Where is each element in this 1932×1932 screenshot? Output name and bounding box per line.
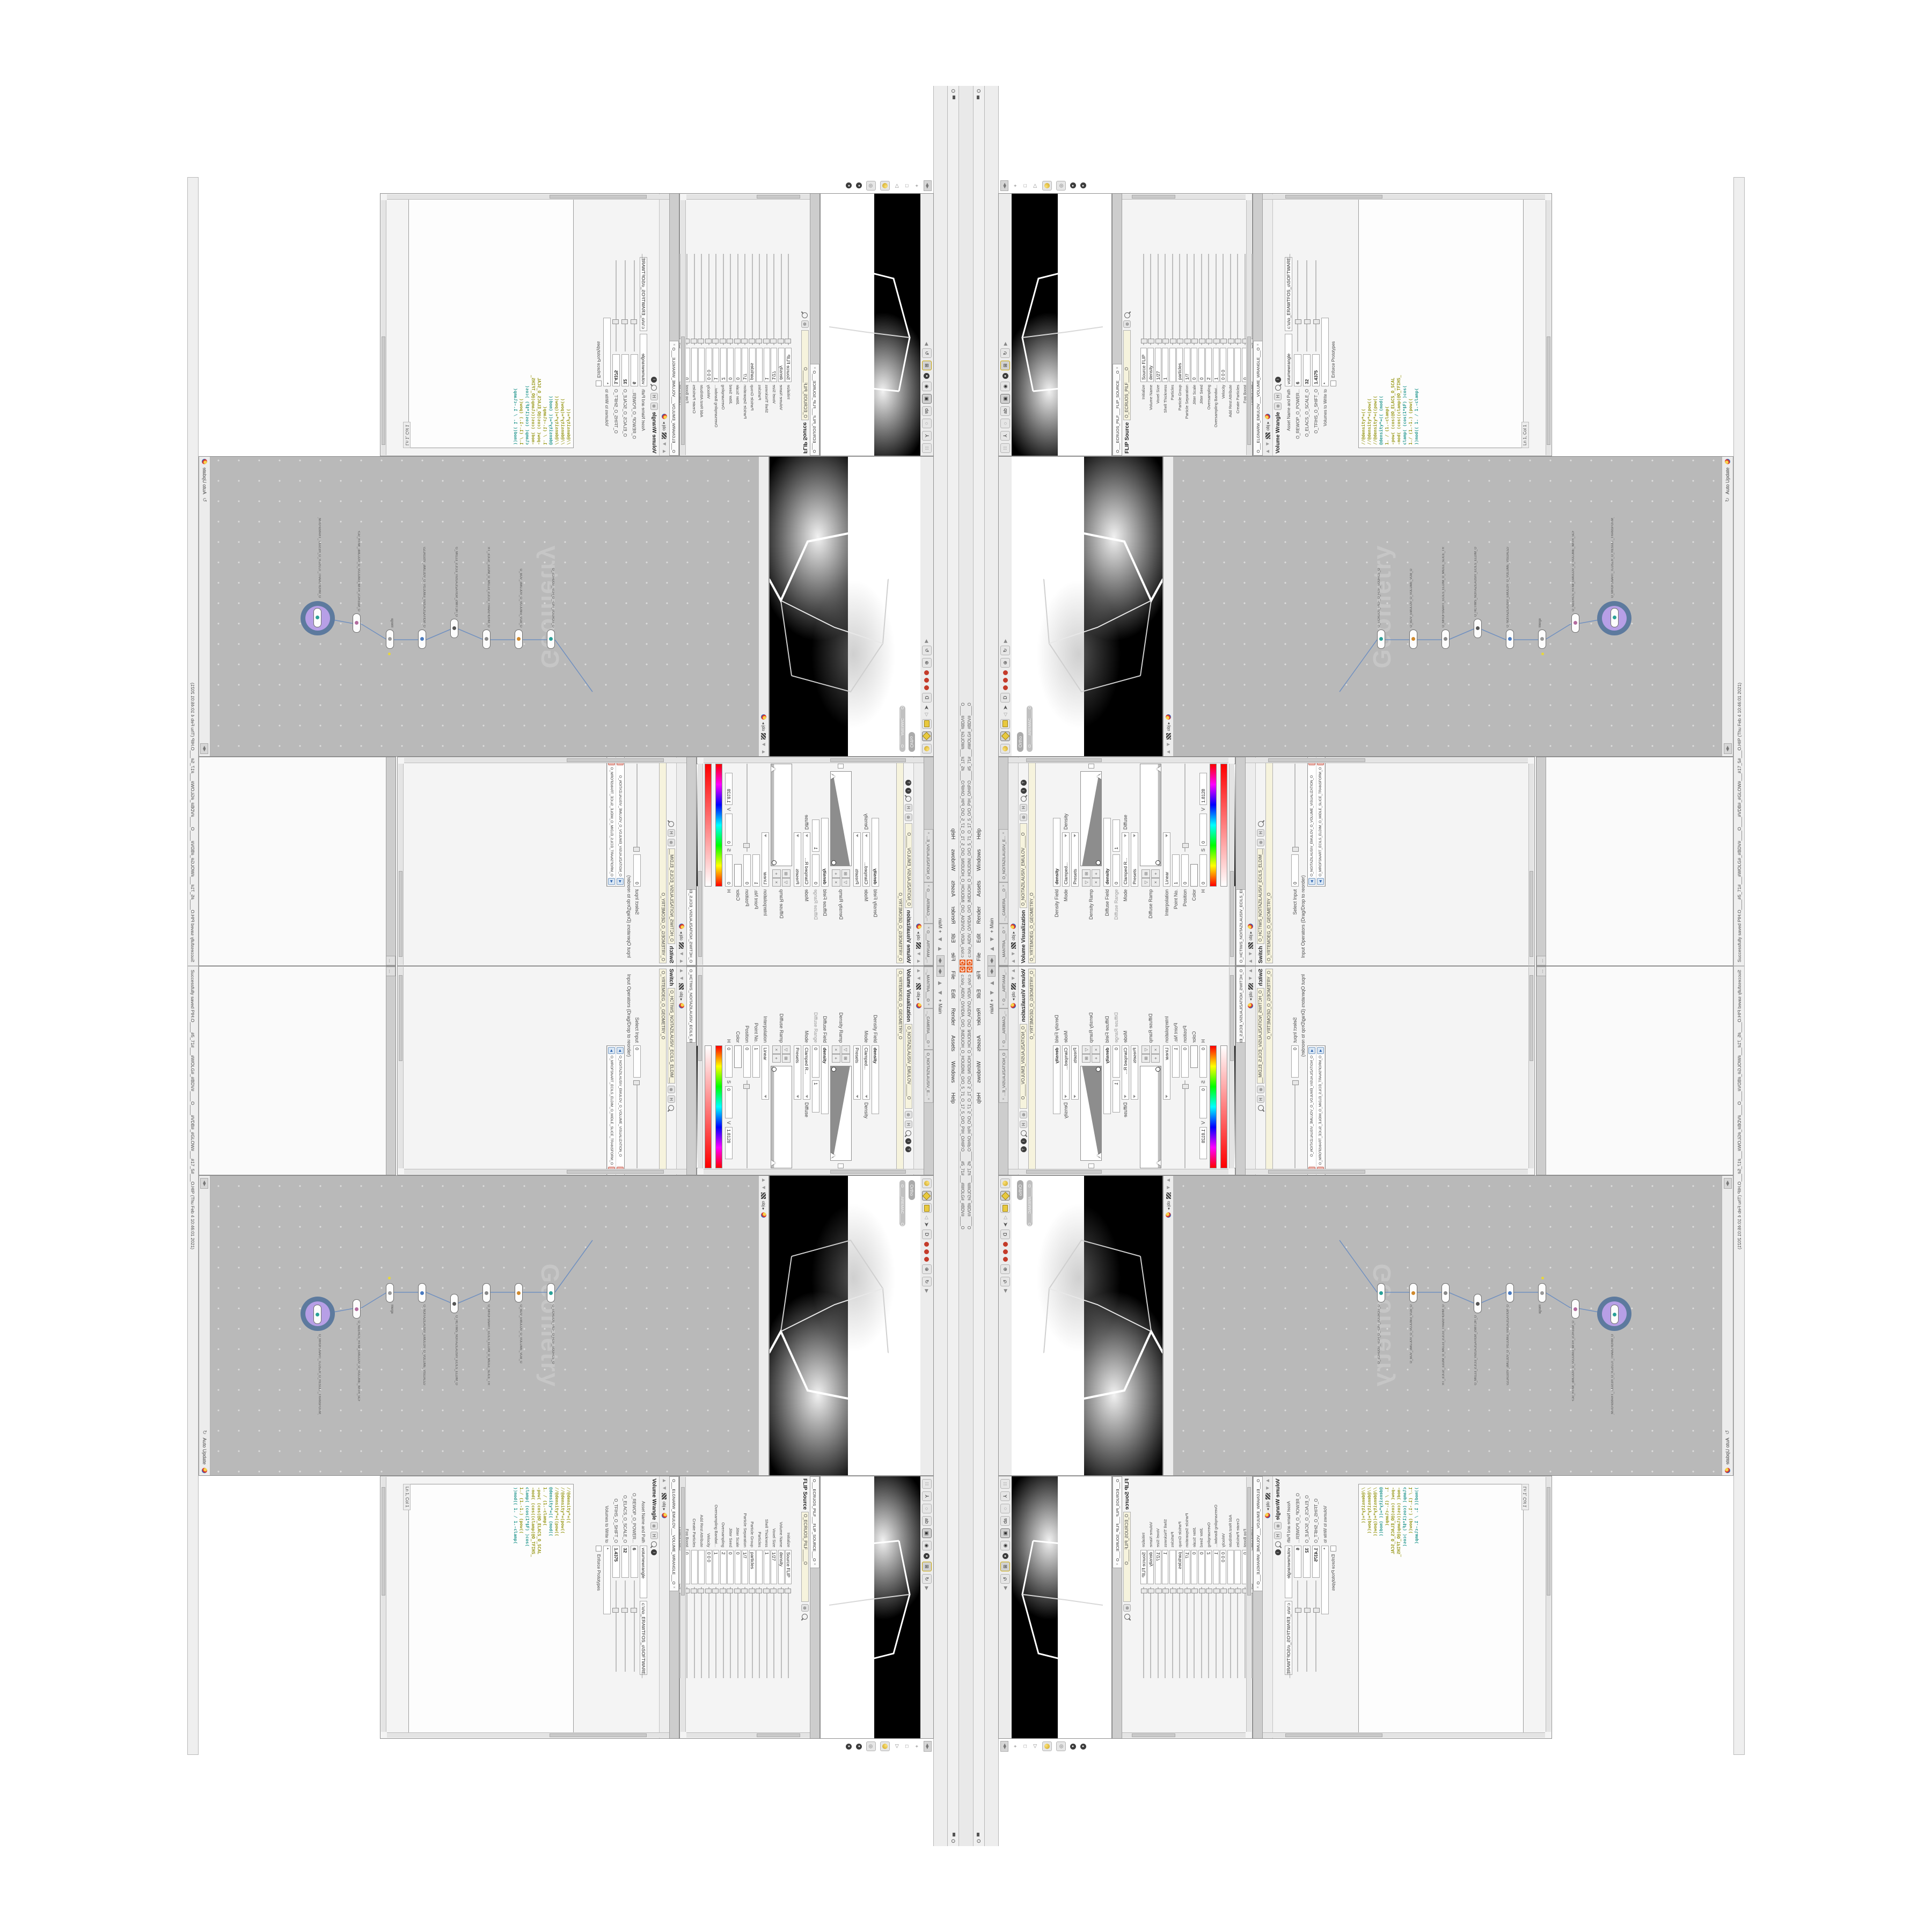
p4-vertical-scrollbar[interactable] (686, 194, 810, 200)
tab-close-icon[interactable]: × (926, 926, 930, 928)
camera-lock-icon[interactable]: ⊕ (922, 1264, 932, 1274)
pane-tab[interactable]: O___ECRUOS_PILF___FLIP_SOURCE___O× (1113, 1476, 1122, 1568)
param-input[interactable]: 32 (621, 354, 629, 386)
param-input[interactable] (699, 1550, 705, 1584)
target-chip-icon[interactable]: ◎ (1056, 1741, 1066, 1751)
menu-item[interactable]: Assets (950, 1030, 956, 1056)
ortho-pill[interactable]: Ortho (1017, 732, 1023, 752)
view-cycle-icon[interactable]: ↻ (922, 646, 932, 655)
window-o-button[interactable]: O (950, 1839, 956, 1843)
menu-item[interactable]: Edit (976, 984, 982, 1003)
saturation-ramp[interactable] (1220, 1045, 1227, 1168)
search-icon[interactable] (1021, 796, 1027, 802)
p2-horizontal-scrollbar[interactable] (1528, 764, 1534, 965)
camera-pill[interactable]: O____AREMAC____O (899, 1180, 905, 1226)
menu-item[interactable]: Help (976, 824, 982, 845)
camera-pill[interactable]: O____AREMAC____O (1027, 1180, 1033, 1226)
reorder-icon[interactable]: ◄ (617, 878, 624, 885)
viewport2-render[interactable] (821, 1476, 920, 1738)
render-icon-1[interactable] (1003, 1242, 1008, 1247)
p4-vertical-scrollbar[interactable] (1122, 194, 1246, 200)
vex-code-editor[interactable]: //@density*=((//@density*=(pow((//@densi… (408, 199, 574, 448)
param-slider[interactable] (745, 1587, 746, 1678)
down-arrow-icon[interactable]: ▼ (1166, 1185, 1172, 1190)
node-visualization[interactable] (418, 630, 426, 649)
window-o-button[interactable]: O (976, 1839, 982, 1843)
target-chip-icon[interactable]: ◎ (866, 1741, 876, 1751)
up-arrow-icon[interactable]: ▲ (761, 749, 767, 755)
p5-horizontal-scrollbar[interactable] (1546, 200, 1551, 455)
gear-icon[interactable]: ⊛ (668, 1086, 675, 1093)
gear-icon[interactable]: ⊛ (1257, 839, 1264, 846)
param-slider[interactable] (1297, 1580, 1298, 1672)
param-input[interactable]: 0 (735, 348, 741, 382)
hsv-h-input[interactable]: 0 (1199, 1045, 1207, 1078)
camera-lock-icon[interactable]: ⊕ (1000, 1264, 1010, 1274)
param-slider[interactable] (694, 1587, 695, 1678)
param-input[interactable]: 1/7 (742, 1550, 749, 1584)
param-slider[interactable] (766, 1587, 767, 1678)
search-icon[interactable] (1258, 1105, 1264, 1111)
collapse-handle[interactable]: ◀▶ (987, 966, 996, 977)
node-midslice-transform[interactable] (482, 630, 491, 649)
search-icon[interactable] (652, 385, 657, 391)
hsv-s-input[interactable]: 0 (1199, 1086, 1207, 1118)
render-icon-2[interactable] (1003, 1249, 1008, 1254)
tab-close-icon[interactable]: × (1116, 1563, 1119, 1565)
param-slider[interactable] (723, 254, 724, 345)
render-icon-3[interactable] (1003, 1257, 1008, 1262)
tab-close-icon[interactable]: × (813, 367, 816, 369)
param-input[interactable]: 0 (1198, 1550, 1205, 1584)
view-tool-icon[interactable] (922, 1179, 932, 1188)
tab-close-icon[interactable]: × (1002, 885, 1006, 887)
param-slider[interactable] (1194, 1587, 1195, 1678)
grid-icon[interactable]: ◌ (922, 1504, 932, 1513)
node-result-transform-selected[interactable] (1611, 608, 1619, 627)
node-flip-source[interactable] (1377, 1283, 1385, 1302)
asset-name-field[interactable]: volumewrangle (1285, 1546, 1292, 1598)
node-merge[interactable] (386, 630, 394, 649)
position-input[interactable]: 0 (743, 854, 751, 887)
tab-close-icon[interactable]: × (1002, 926, 1006, 928)
down-arrow-icon[interactable]: ▼ (1011, 951, 1016, 956)
ramp-buttons[interactable]: ▽⊞×+ (1082, 870, 1100, 887)
point-no-input[interactable]: 1 (752, 1045, 760, 1078)
color-swatch[interactable] (734, 864, 742, 887)
param-input[interactable]: 1/7 (1184, 1550, 1190, 1584)
param-slider[interactable] (1201, 254, 1202, 345)
node-path-field[interactable]: O_YRTEMOEG_O_GEOMETRY_O (1028, 969, 1036, 1173)
info-icon[interactable]: i (906, 788, 912, 794)
param-slider[interactable] (1245, 254, 1246, 345)
search-icon[interactable] (669, 821, 675, 827)
quadview-icon[interactable]: ⊞ (922, 361, 932, 370)
ramp-preview-checkbox[interactable] (1088, 1163, 1094, 1168)
pane-tab[interactable]: ..._CAMERA___O× (924, 1008, 933, 1050)
param-slider[interactable] (1216, 254, 1217, 345)
diffuse-range-0[interactable]: 0 (812, 854, 819, 887)
prev-icon[interactable]: ◁ (1002, 713, 1008, 716)
saturation-ramp[interactable] (705, 764, 712, 887)
up-arrow-icon[interactable]: ▲ (916, 958, 922, 964)
image-plane-icon[interactable]: ▣ (1000, 1528, 1010, 1538)
menu-item[interactable]: File (976, 966, 982, 984)
viewport2-render[interactable] (821, 194, 920, 456)
node-name-field[interactable]: O_ECRUOS_PILF_____O (801, 330, 809, 420)
param-slider[interactable] (1187, 254, 1188, 345)
param-input[interactable] (757, 1550, 763, 1584)
menu-item[interactable]: Assets (976, 1030, 982, 1056)
param-input[interactable] (1227, 348, 1234, 382)
down-arrow-icon[interactable]: ▼ (1248, 976, 1254, 981)
p5-vertical-scrollbar[interactable] (1263, 194, 1545, 200)
param-input[interactable] (691, 348, 698, 382)
up-arrow-icon[interactable]: ▲ (1265, 449, 1271, 454)
param-slider[interactable] (788, 1587, 789, 1678)
window-o-button[interactable]: O (950, 89, 956, 93)
param-slider[interactable] (745, 254, 746, 345)
param-slider[interactable] (1208, 254, 1209, 345)
p4-horizontal-scrollbar[interactable] (1246, 200, 1252, 455)
eye-icon[interactable]: ◉ (1000, 382, 1010, 391)
render-icon-1[interactable] (1003, 685, 1008, 690)
presets-dropdown[interactable]: Presets (853, 1045, 861, 1100)
desktop-selector[interactable]: + Main (989, 918, 994, 933)
asset-name-field[interactable]: volumewrangle (1285, 334, 1292, 386)
param-slider[interactable] (737, 1587, 738, 1678)
saturation-ramp[interactable] (705, 1045, 712, 1168)
snap-icon[interactable]: D (1000, 1230, 1010, 1239)
volumes-input[interactable]: * (603, 1546, 611, 1614)
param-slider[interactable] (1150, 1587, 1151, 1678)
vex-code-editor[interactable]: //@density*=((//@density*=(pow((//@densi… (408, 1484, 574, 1733)
menu-item[interactable]: Render (950, 902, 956, 929)
hsv-v-input[interactable]: 1.8128 (1199, 773, 1207, 805)
view-tool-icon[interactable] (1000, 1179, 1010, 1188)
render-icon-3[interactable] (1003, 670, 1008, 675)
tab-close-icon[interactable]: × (1002, 1098, 1006, 1100)
node-name-field[interactable]: O_NOITAZILAUSIV_EMULOV_____O (1020, 1024, 1027, 1109)
collapse-handle[interactable]: ◀▶ (1000, 180, 1008, 191)
search-icon[interactable] (1275, 385, 1281, 391)
reorder-icon[interactable]: ◄ (1308, 1047, 1315, 1054)
gear-icon[interactable]: ⊛ (801, 1604, 809, 1612)
param-input[interactable]: 0 (1191, 1550, 1197, 1584)
param-slider[interactable] (1187, 1587, 1188, 1678)
ramp-handle[interactable] (1096, 860, 1101, 865)
diffuse-range-1[interactable]: 1 (812, 819, 819, 852)
gear-icon[interactable]: ⊛ (668, 839, 675, 846)
ramp-pointer[interactable] (1097, 1153, 1101, 1158)
hue-ramp[interactable] (715, 1045, 722, 1168)
down-arrow-icon[interactable]: ▼ (1265, 441, 1271, 447)
node-result-transform-selected[interactable] (313, 1305, 321, 1324)
pane-tab[interactable]: O___ELGNARW_EMULOV___VOLUME_WRANGLE___O× (670, 341, 679, 456)
param-input[interactable]: 6 (1294, 354, 1301, 386)
refresh-icon[interactable]: ↻ (202, 1430, 208, 1435)
reorder-icon[interactable]: ◄ (1317, 878, 1324, 885)
node-path-field[interactable]: O_YRTEMOEG_O_GEOMETRY_O (659, 759, 667, 963)
triangle-icon[interactable]: ▷ (1032, 1745, 1038, 1748)
collapse-handle[interactable]: ◀▶ (924, 180, 932, 191)
image-plane-icon[interactable]: ▣ (922, 394, 932, 404)
param-slider[interactable] (716, 254, 717, 345)
density-ramp-widget[interactable] (830, 1066, 852, 1161)
refresh-icon[interactable]: ↻ (1725, 497, 1731, 502)
square-icon[interactable]: □ (904, 1745, 910, 1747)
param-input[interactable]: 2 (1205, 348, 1212, 382)
node-volume-with-screen[interactable] (1571, 1299, 1579, 1319)
p5-vertical-scrollbar[interactable] (387, 1732, 669, 1738)
node-midslice-transform[interactable] (1441, 1283, 1450, 1302)
camera-pill[interactable]: O____AREMAC____O (899, 706, 905, 752)
param-input[interactable] (691, 1550, 698, 1584)
ortho-pill[interactable]: Ortho (1017, 1180, 1023, 1200)
param-slider[interactable] (774, 254, 775, 345)
select-input-slider[interactable] (636, 764, 638, 852)
interpolation-dropdown[interactable]: Linear (762, 832, 769, 887)
reorder-icon[interactable]: ◄ (1308, 878, 1315, 885)
ortho-pill[interactable]: Ortho (909, 1180, 915, 1200)
asset-path-field[interactable]: c:\o\o_ERAWTFOS_o\SOFTWARE... (640, 1601, 647, 1675)
pane-tab[interactable]: ..._MANTRA___O× (924, 967, 933, 1008)
param-input[interactable]: particles (1176, 1550, 1183, 1584)
down-arrow-icon[interactable]: ▼ (761, 742, 767, 747)
param-input[interactable]: 1/27 (1155, 348, 1161, 382)
menu-item[interactable]: Assets (976, 876, 982, 902)
search-icon[interactable] (1021, 1130, 1027, 1136)
breadcrumb[interactable]: obj ▸ (762, 1201, 766, 1210)
param-input[interactable]: Source FLIP (1140, 348, 1147, 382)
diffuse-range-0[interactable]: 0 (1113, 854, 1120, 887)
up-arrow-icon[interactable]: ▲ (1166, 749, 1172, 755)
p1-vertical-scrollbar[interactable] (1008, 758, 1228, 763)
presets-dropdown[interactable]: Presets (853, 832, 861, 887)
auto-update-selector[interactable]: Auto Update (202, 1438, 207, 1465)
collapse-handle[interactable]: ◀▶ (936, 955, 945, 966)
breadcrumb[interactable]: obj ▸ (1265, 1502, 1270, 1511)
pane-tab[interactable]: O_HCTIWS_NOITAZILAUSIV_ECILS_EL...× (687, 967, 696, 1043)
move-tool-icon[interactable] (1000, 1203, 1010, 1213)
param-input[interactable]: 1/27 (771, 1550, 778, 1584)
search-icon[interactable] (652, 1541, 657, 1547)
param-input[interactable]: 6 (1294, 1546, 1301, 1578)
select-tool-icon[interactable] (922, 1191, 932, 1201)
gear-icon[interactable]: ⊛ (1123, 1604, 1131, 1612)
gear-icon[interactable]: ⊛ (650, 1522, 658, 1529)
asset-name-field[interactable]: volumewrangle (640, 334, 647, 386)
node-path-field[interactable]: O_YRTEMOEG_O_GEOMETRY_O (1265, 759, 1273, 963)
eye-icon[interactable]: ◉ (1000, 1541, 1010, 1550)
diffuse-range-1[interactable]: 1 (1113, 1080, 1120, 1113)
move-tool-icon[interactable] (922, 719, 932, 729)
p4-horizontal-scrollbar[interactable] (680, 1477, 686, 1732)
node-result-transform-selected[interactable] (313, 608, 321, 627)
link-icon[interactable]: ● (856, 1744, 862, 1750)
p2-vertical-scrollbar[interactable] (1246, 1169, 1528, 1174)
param-input[interactable]: density (1147, 348, 1154, 382)
text-icon[interactable]: ab (922, 1516, 932, 1526)
node-name-field[interactable]: O_NOITAZILAUSIV_EMULOV_____O (905, 823, 912, 908)
param-slider[interactable] (730, 254, 731, 345)
up-arrow-icon[interactable]: ▲ (1011, 968, 1016, 974)
param-input[interactable]: 1.4375 (612, 354, 620, 386)
node-path-field[interactable]: O_YRTEMOEG_O_GEOMETRY_O (1028, 759, 1036, 963)
gear-icon[interactable]: ⊛ (1257, 1086, 1264, 1093)
diffuse-range-1[interactable]: 1 (812, 1080, 819, 1113)
p4-vertical-scrollbar[interactable] (686, 1732, 810, 1738)
node-merge[interactable] (386, 1283, 394, 1302)
hsv-h-input[interactable]: 0 (1199, 854, 1207, 887)
points-icon[interactable]: ∷ (1000, 1479, 1010, 1489)
param-slider[interactable] (752, 1587, 753, 1678)
hscript-icon[interactable]: H (1257, 1095, 1264, 1103)
pane-tab[interactable]: ..._CAMERA___O× (924, 882, 933, 924)
param-slider[interactable] (1315, 1580, 1316, 1672)
param-slider[interactable] (1172, 254, 1173, 345)
gear-icon[interactable]: ⊛ (1020, 814, 1027, 821)
render-icon-1[interactable] (925, 1242, 930, 1247)
refresh-icon[interactable]: ↻ (202, 497, 208, 502)
menu-item[interactable]: Help (950, 824, 956, 845)
param-input[interactable]: particles (749, 348, 756, 382)
move-tool-icon[interactable] (1000, 719, 1010, 729)
p4-vertical-scrollbar[interactable] (1122, 1732, 1246, 1738)
param-slider[interactable] (701, 254, 702, 345)
hsv-v-input[interactable]: 1.8128 (1199, 1127, 1207, 1159)
mode-dropdown[interactable]: Clamped... (862, 832, 870, 887)
tab-close-icon[interactable]: × (926, 1045, 930, 1047)
ramp-handle[interactable] (831, 1067, 836, 1072)
menu-item[interactable]: Windows (950, 844, 956, 876)
breadcrumb[interactable]: obj ▸ (1166, 722, 1171, 731)
desktop-selector[interactable]: + Main (938, 999, 943, 1014)
node-visualization[interactable] (1506, 1283, 1514, 1302)
sphere-chip-icon[interactable] (880, 1741, 890, 1751)
diffuse-ramp-widget[interactable] (1140, 764, 1161, 866)
pane-tab[interactable]: O___ECRUOS_PILF___FLIP_SOURCE___O× (1113, 364, 1122, 456)
param-slider[interactable] (616, 1580, 617, 1672)
nav-down-icon[interactable]: ▼ (937, 990, 945, 996)
up-arrow-icon[interactable]: ▲ (1265, 1478, 1271, 1483)
p1-horizontal-scrollbar[interactable] (1229, 764, 1234, 965)
param-input[interactable]: 32 (621, 1546, 629, 1578)
param-slider[interactable] (634, 260, 635, 352)
param-input[interactable] (1169, 1550, 1176, 1584)
param-slider[interactable] (1150, 254, 1151, 345)
search-icon[interactable] (669, 1105, 675, 1111)
p1-horizontal-scrollbar[interactable] (698, 967, 703, 1168)
prev-icon[interactable]: ◁ (1002, 1216, 1008, 1219)
down-arrow-icon[interactable]: ▼ (1265, 1485, 1271, 1491)
nav-down-icon[interactable]: ▼ (937, 936, 945, 942)
menu-item[interactable]: Windows (950, 1056, 956, 1088)
p2-horizontal-scrollbar[interactable] (1528, 967, 1534, 1168)
p5-horizontal-scrollbar[interactable] (381, 200, 386, 455)
sphere-chip-icon[interactable] (1042, 1741, 1052, 1751)
ramp-buttons[interactable]: ▽⊞×+ (832, 870, 850, 887)
play-icon[interactable]: ▶ (1002, 1289, 1008, 1293)
param-slider[interactable] (1297, 260, 1298, 352)
collapse-handle[interactable]: ◀▶ (924, 1741, 932, 1752)
up-arrow-icon[interactable]: ▲ (679, 958, 685, 964)
density-field-input[interactable]: density (1053, 1045, 1060, 1114)
position-input[interactable]: 0 (743, 1045, 751, 1078)
param-input[interactable] (699, 348, 705, 382)
param-input[interactable] (1234, 1550, 1241, 1584)
param-slider[interactable] (759, 254, 760, 345)
param-input[interactable]: density (778, 348, 785, 382)
enforce-prototypes-checkbox[interactable] (1330, 1546, 1336, 1552)
breadcrumb[interactable]: obj ▸ (762, 722, 766, 731)
asset-name-field[interactable]: volumewrangle (640, 1546, 647, 1598)
link-icon[interactable]: ● (924, 1553, 930, 1559)
p2-horizontal-scrollbar[interactable] (398, 764, 404, 965)
desktop-selector[interactable]: + Main (989, 999, 994, 1014)
param-slider[interactable] (723, 1587, 724, 1678)
select-input-field[interactable]: 0 (633, 1045, 641, 1078)
axis-icon[interactable]: ⅄ (1000, 1491, 1010, 1501)
position-slider[interactable] (747, 1080, 748, 1168)
link-icon[interactable]: ● (924, 373, 930, 379)
param-input[interactable]: 0 (735, 1550, 741, 1584)
param-slider[interactable] (708, 1587, 709, 1678)
asset-path-field[interactable]: c:\o\o_ERAWTFOS_o\SOFTWARE... (640, 257, 647, 331)
param-slider[interactable] (1315, 260, 1316, 352)
param-input[interactable]: density (1147, 1550, 1154, 1584)
interpolation-dropdown[interactable]: Linear (1163, 1045, 1170, 1100)
down-arrow-icon[interactable]: ▼ (679, 951, 685, 956)
rotate-icon[interactable]: ↻ (1000, 1574, 1010, 1584)
viewport2-render[interactable] (1012, 1476, 1111, 1738)
menu-item[interactable]: Render (976, 902, 982, 929)
plus-icon[interactable]: + (914, 1745, 919, 1747)
breadcrumb[interactable]: obj ▸ (662, 1502, 667, 1511)
ramp-handle[interactable] (1096, 1067, 1101, 1072)
node-flip-source[interactable] (547, 630, 555, 649)
breadcrumb[interactable]: obj ▸ (1166, 1201, 1171, 1210)
param-input[interactable]: particles (749, 1550, 756, 1584)
down-arrow-icon[interactable]: ▼ (662, 1485, 668, 1491)
hsv-v-input[interactable]: 1.8128 (725, 1127, 733, 1159)
node-name-field[interactable]: O_HCTIWS_NOITAZILAUSIV_ECILS_ELDIM_____O (1257, 848, 1264, 944)
up-arrow-icon[interactable]: ▲ (679, 968, 685, 974)
desktop-layout-icon[interactable] (950, 95, 956, 101)
position-slider[interactable] (747, 764, 748, 852)
density-ramp-widget[interactable] (1080, 771, 1102, 866)
volumes-input[interactable]: * (1321, 318, 1329, 386)
grid-icon[interactable]: ◌ (1000, 1504, 1010, 1513)
param-slider[interactable] (634, 1580, 635, 1672)
snap-icon[interactable]: D (1000, 693, 1010, 702)
param-input[interactable]: 1.4375 (1312, 1546, 1320, 1578)
operator-item[interactable]: ◄ O_NOITAZILAUSIV_EMULOV_O_VOLUME_VISUAL… (1308, 1046, 1316, 1175)
param-input[interactable]: 0 (1191, 348, 1197, 382)
breadcrumb[interactable]: obj ▸ (679, 931, 684, 940)
play-icon[interactable]: ▶ (924, 1586, 930, 1590)
down-arrow-icon[interactable]: ▼ (1248, 951, 1254, 956)
link-icon[interactable]: ● (1070, 1744, 1076, 1750)
gear-icon[interactable]: ⊛ (1274, 402, 1282, 410)
vex-code-editor[interactable]: //@density*=((//@density*=(pow((//@densi… (1358, 199, 1524, 448)
reorder-icon[interactable]: ◄ (1317, 1047, 1324, 1054)
link-icon[interactable]: ● (856, 183, 862, 189)
p1-vertical-scrollbar[interactable] (1008, 1169, 1228, 1174)
node-name-field[interactable]: O_HCTIWS_NOITAZILAUSIV_ECILS_ELDIM_____O (668, 988, 675, 1084)
down-arrow-icon[interactable]: ▼ (679, 976, 685, 981)
ramp-buttons[interactable]: ▽⊞×+ (1082, 1045, 1100, 1062)
